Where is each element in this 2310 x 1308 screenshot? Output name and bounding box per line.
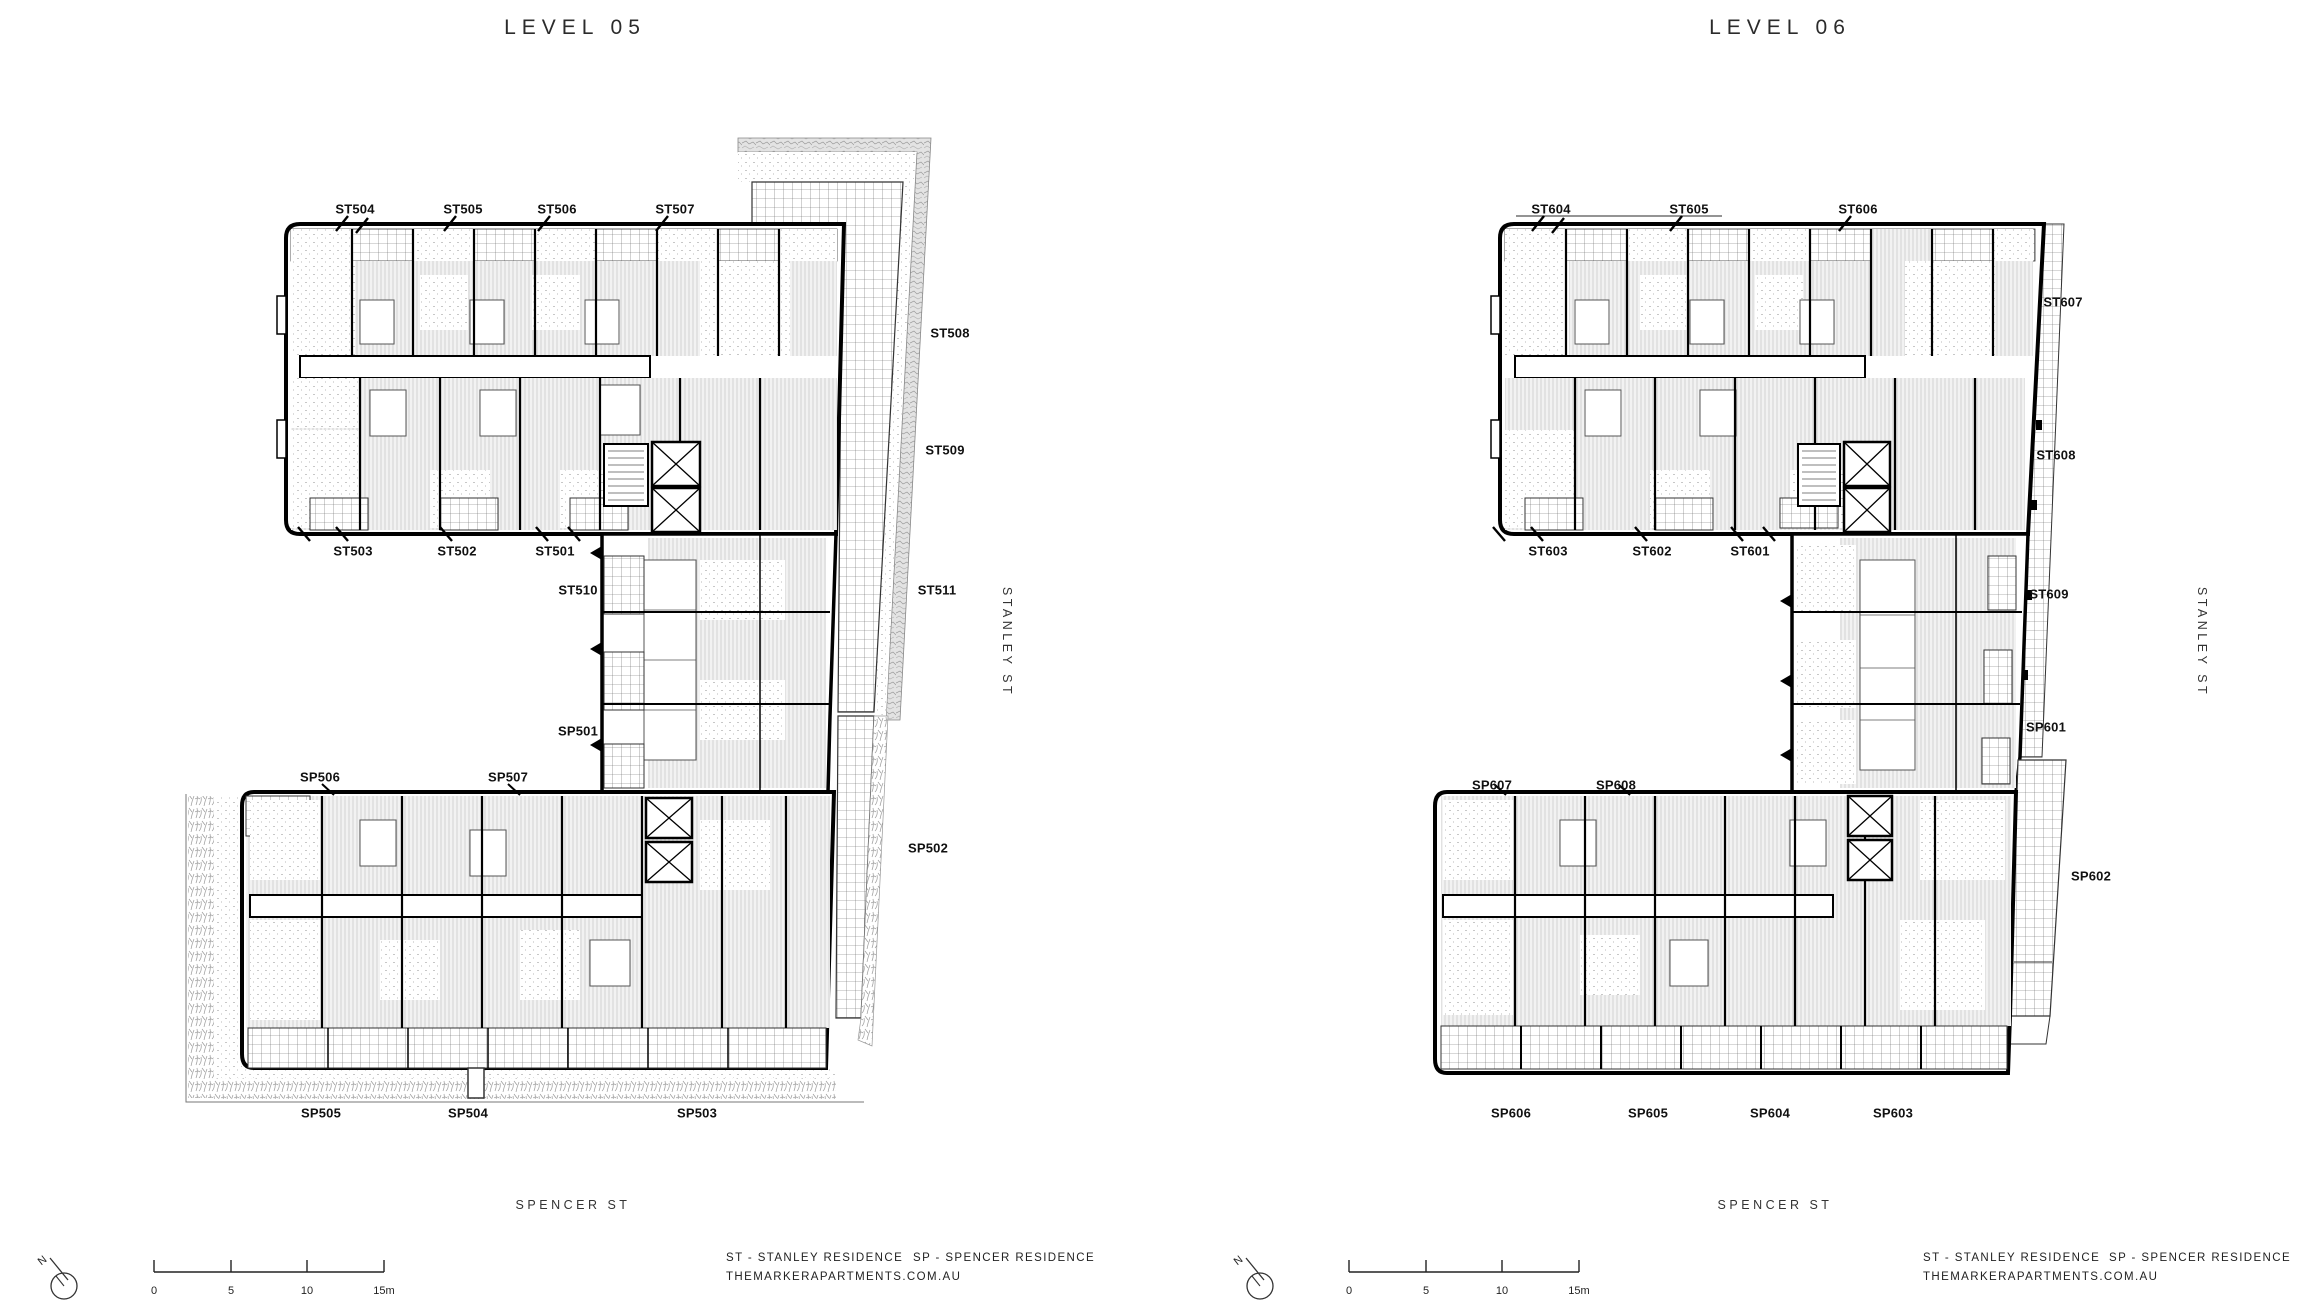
unit-label-st601: ST601 [1730, 544, 1769, 559]
legend-stanley-left: ST - STANLEY RESIDENCE [726, 1252, 903, 1264]
unit-label-st608: ST608 [2036, 448, 2075, 463]
unit-label-st510: ST510 [558, 583, 597, 598]
north-label-left: N [36, 1254, 50, 1268]
street-label-spencer-st-left: SPENCER ST [516, 1198, 631, 1212]
unit-label-st511: ST511 [918, 583, 957, 598]
unit-label-st504: ST504 [335, 202, 374, 217]
scale-bar-right: 0 5 10 15m [1339, 1258, 1601, 1306]
unit-label-sp503: SP503 [677, 1106, 717, 1121]
unit-label-sp608: SP608 [1596, 778, 1636, 793]
unit-label-st602: ST602 [1632, 544, 1671, 559]
street-label-spencer-st-right: SPENCER ST [1718, 1198, 1833, 1212]
unit-label-sp501: SP501 [558, 724, 598, 739]
unit-label-st603: ST603 [1528, 544, 1567, 559]
scale-tick-5-right: 5 [1423, 1285, 1429, 1297]
unit-label-sp507: SP507 [488, 770, 528, 785]
unit-label-sp603: SP603 [1873, 1106, 1913, 1121]
scale-tick-0-right: 0 [1346, 1285, 1352, 1297]
scale-tick-15m-left: 15m [373, 1285, 394, 1297]
level-05-plan-drawing [186, 138, 931, 1102]
unit-label-st604: ST604 [1531, 202, 1570, 217]
unit-label-sp607: SP607 [1472, 778, 1512, 793]
scale-tick-15m-right: 15m [1568, 1285, 1589, 1297]
unit-label-sp606: SP606 [1491, 1106, 1531, 1121]
website-url-left: THEMARKERAPARTMENTS.COM.AU [726, 1271, 961, 1283]
unit-label-st509: ST509 [925, 443, 964, 458]
unit-label-sp504: SP504 [448, 1106, 488, 1121]
unit-label-st606: ST606 [1838, 202, 1877, 217]
page-title-level-06: LEVEL 06 [1709, 16, 1851, 40]
scale-tick-5-left: 5 [228, 1285, 234, 1297]
scale-tick-10-left: 10 [301, 1285, 313, 1297]
street-label-stanley-st-left: STANLEY ST [1000, 587, 1014, 697]
unit-label-sp605: SP605 [1628, 1106, 1668, 1121]
website-url-right: THEMARKERAPARTMENTS.COM.AU [1923, 1271, 2158, 1283]
unit-label-sp604: SP604 [1750, 1106, 1790, 1121]
unit-label-st506: ST506 [537, 202, 576, 217]
scale-tick-10-right: 10 [1496, 1285, 1508, 1297]
page-title-level-05: LEVEL 05 [504, 16, 646, 40]
floorplans-drawing [0, 0, 2310, 1308]
north-label-right: N [1232, 1254, 1246, 1268]
unit-label-sp505: SP505 [301, 1106, 341, 1121]
north-arrow-right: N [1224, 1246, 1296, 1308]
legend-spencer-left: SP - SPENCER RESIDENCE [913, 1252, 1095, 1264]
unit-label-sp602: SP602 [2071, 869, 2111, 884]
legend-stanley-right: ST - STANLEY RESIDENCE [1923, 1252, 2100, 1264]
unit-label-st605: ST605 [1669, 202, 1708, 217]
level-06-plan-drawing [1435, 216, 2066, 1073]
scale-tick-0-left: 0 [151, 1285, 157, 1297]
unit-label-st508: ST508 [930, 326, 969, 341]
unit-label-st609: ST609 [2029, 587, 2068, 602]
unit-label-st507: ST507 [655, 202, 694, 217]
unit-label-st503: ST503 [333, 544, 372, 559]
north-arrow-left: N [28, 1246, 100, 1308]
street-label-stanley-st-right: STANLEY ST [2195, 587, 2209, 697]
unit-label-sp506: SP506 [300, 770, 340, 785]
unit-label-sp502: SP502 [908, 841, 948, 856]
legend-spencer-right: SP - SPENCER RESIDENCE [2109, 1252, 2291, 1264]
unit-label-st502: ST502 [437, 544, 476, 559]
unit-label-sp601: SP601 [2026, 720, 2066, 735]
unit-label-st501: ST501 [535, 544, 574, 559]
unit-label-st505: ST505 [443, 202, 482, 217]
scale-bar-left: 0 5 10 15m [144, 1258, 406, 1306]
floorplan-page: LEVEL 05 ST504 ST505 ST506 ST507 ST508 S… [0, 0, 2310, 1308]
unit-label-st607: ST607 [2043, 295, 2082, 310]
